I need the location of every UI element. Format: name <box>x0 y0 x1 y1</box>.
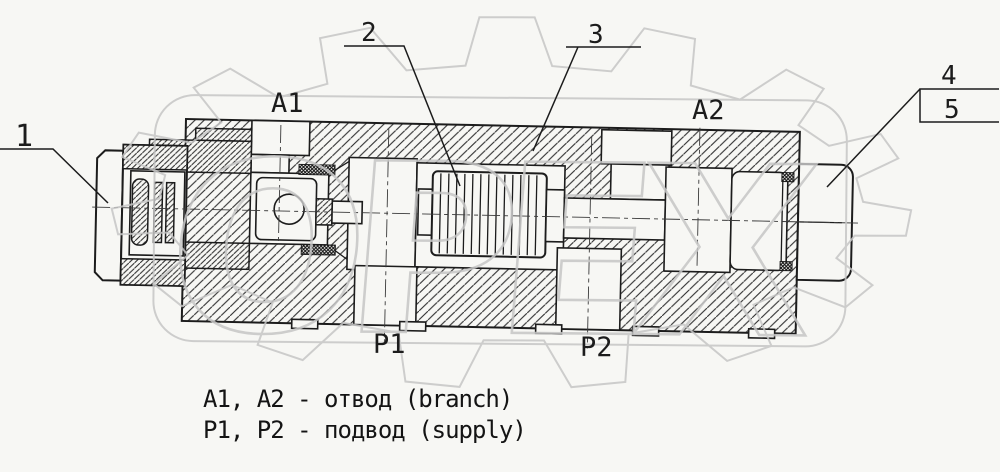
callout-1-label: 1 <box>15 119 33 154</box>
callout-3-label: 3 <box>588 20 604 50</box>
watermark: ОРЕХ <box>110 14 913 393</box>
valve-cross-section-diagram: ОРЕХ 1 2 3 4 5 A1 A2 P1 P2 A1, A2 - отво… <box>0 0 1000 472</box>
legend-line-1: A1, A2 - отвод (branch) <box>203 385 512 413</box>
callout-1: 1 <box>0 119 108 203</box>
watermark-text: ОРЕХ <box>158 113 823 391</box>
callout-4-label: 4 <box>941 61 957 91</box>
port-label-a1: A1 <box>271 88 304 119</box>
callout-4-5: 4 5 <box>827 61 999 187</box>
callout-5-label: 5 <box>944 95 960 125</box>
port-label-p1: P1 <box>373 329 406 360</box>
legend: A1, A2 - отвод (branch) P1, P2 - подвод … <box>203 385 526 444</box>
port-label-p2: P2 <box>580 332 613 363</box>
diagram-canvas: ОРЕХ 1 2 3 4 5 A1 A2 P1 P2 A1, A2 - отво… <box>0 0 1000 472</box>
callout-2-label: 2 <box>361 18 377 48</box>
legend-line-2: P1, P2 - подвод (supply) <box>203 416 526 444</box>
cap-end <box>95 150 124 281</box>
port-label-a2: A2 <box>692 95 725 126</box>
